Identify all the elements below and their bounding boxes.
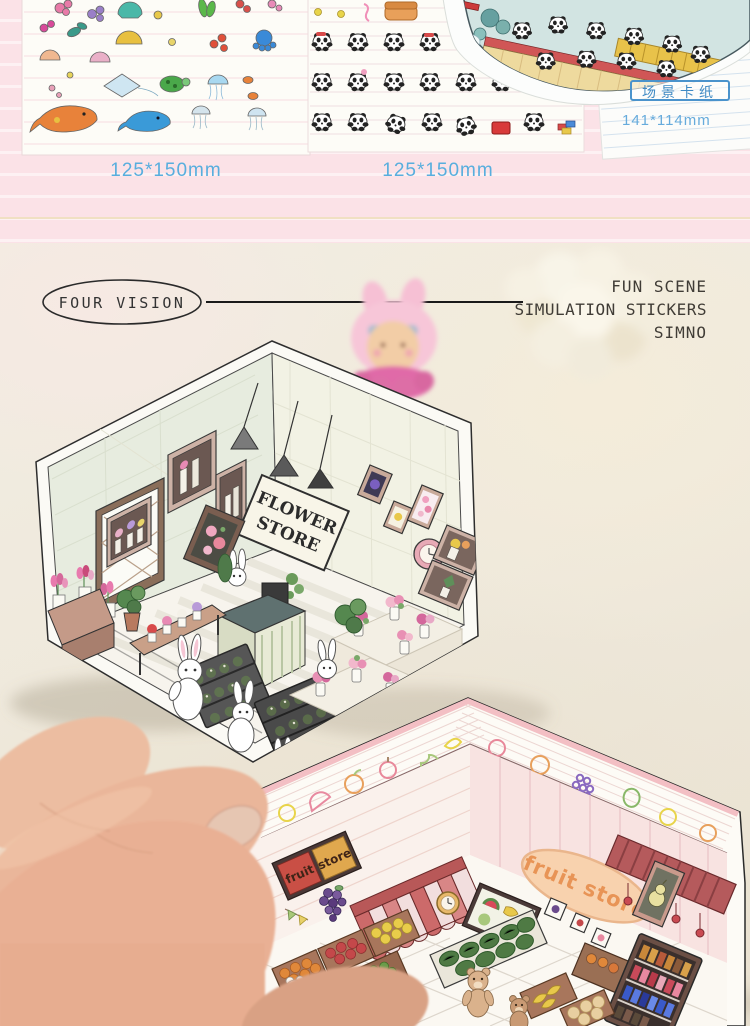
sticker-sheets-section: 125*150mm 125*150mm 场景卡纸 141*114mm — [0, 0, 750, 243]
fruit-wall-clock — [437, 892, 459, 914]
product-photo-section: FOUR VISION FUN SCENE SIMULATION STICKER… — [0, 243, 750, 1026]
scene-card-dimension-label: 141*114mm — [622, 112, 732, 129]
tagline-line-1: FUN SCENE — [611, 277, 707, 296]
sea-sticker-sheet — [22, 0, 310, 155]
scene-card-label: 场景卡纸 — [630, 80, 730, 101]
product-detail-image: 125*150mm 125*150mm 场景卡纸 141*114mm — [0, 0, 750, 1026]
tagline-line-2: SIMULATION STICKERS — [514, 300, 707, 319]
tagline-line-3: SIMNO — [654, 323, 707, 342]
paper-accent-line — [0, 217, 750, 219]
sea-sheet-dimension-label: 125*150mm — [22, 160, 310, 182]
brand-badge-label: FOUR VISION — [59, 294, 186, 312]
bear-small — [510, 996, 530, 1026]
panda-sheet-dimension-label: 125*150mm — [308, 160, 568, 182]
